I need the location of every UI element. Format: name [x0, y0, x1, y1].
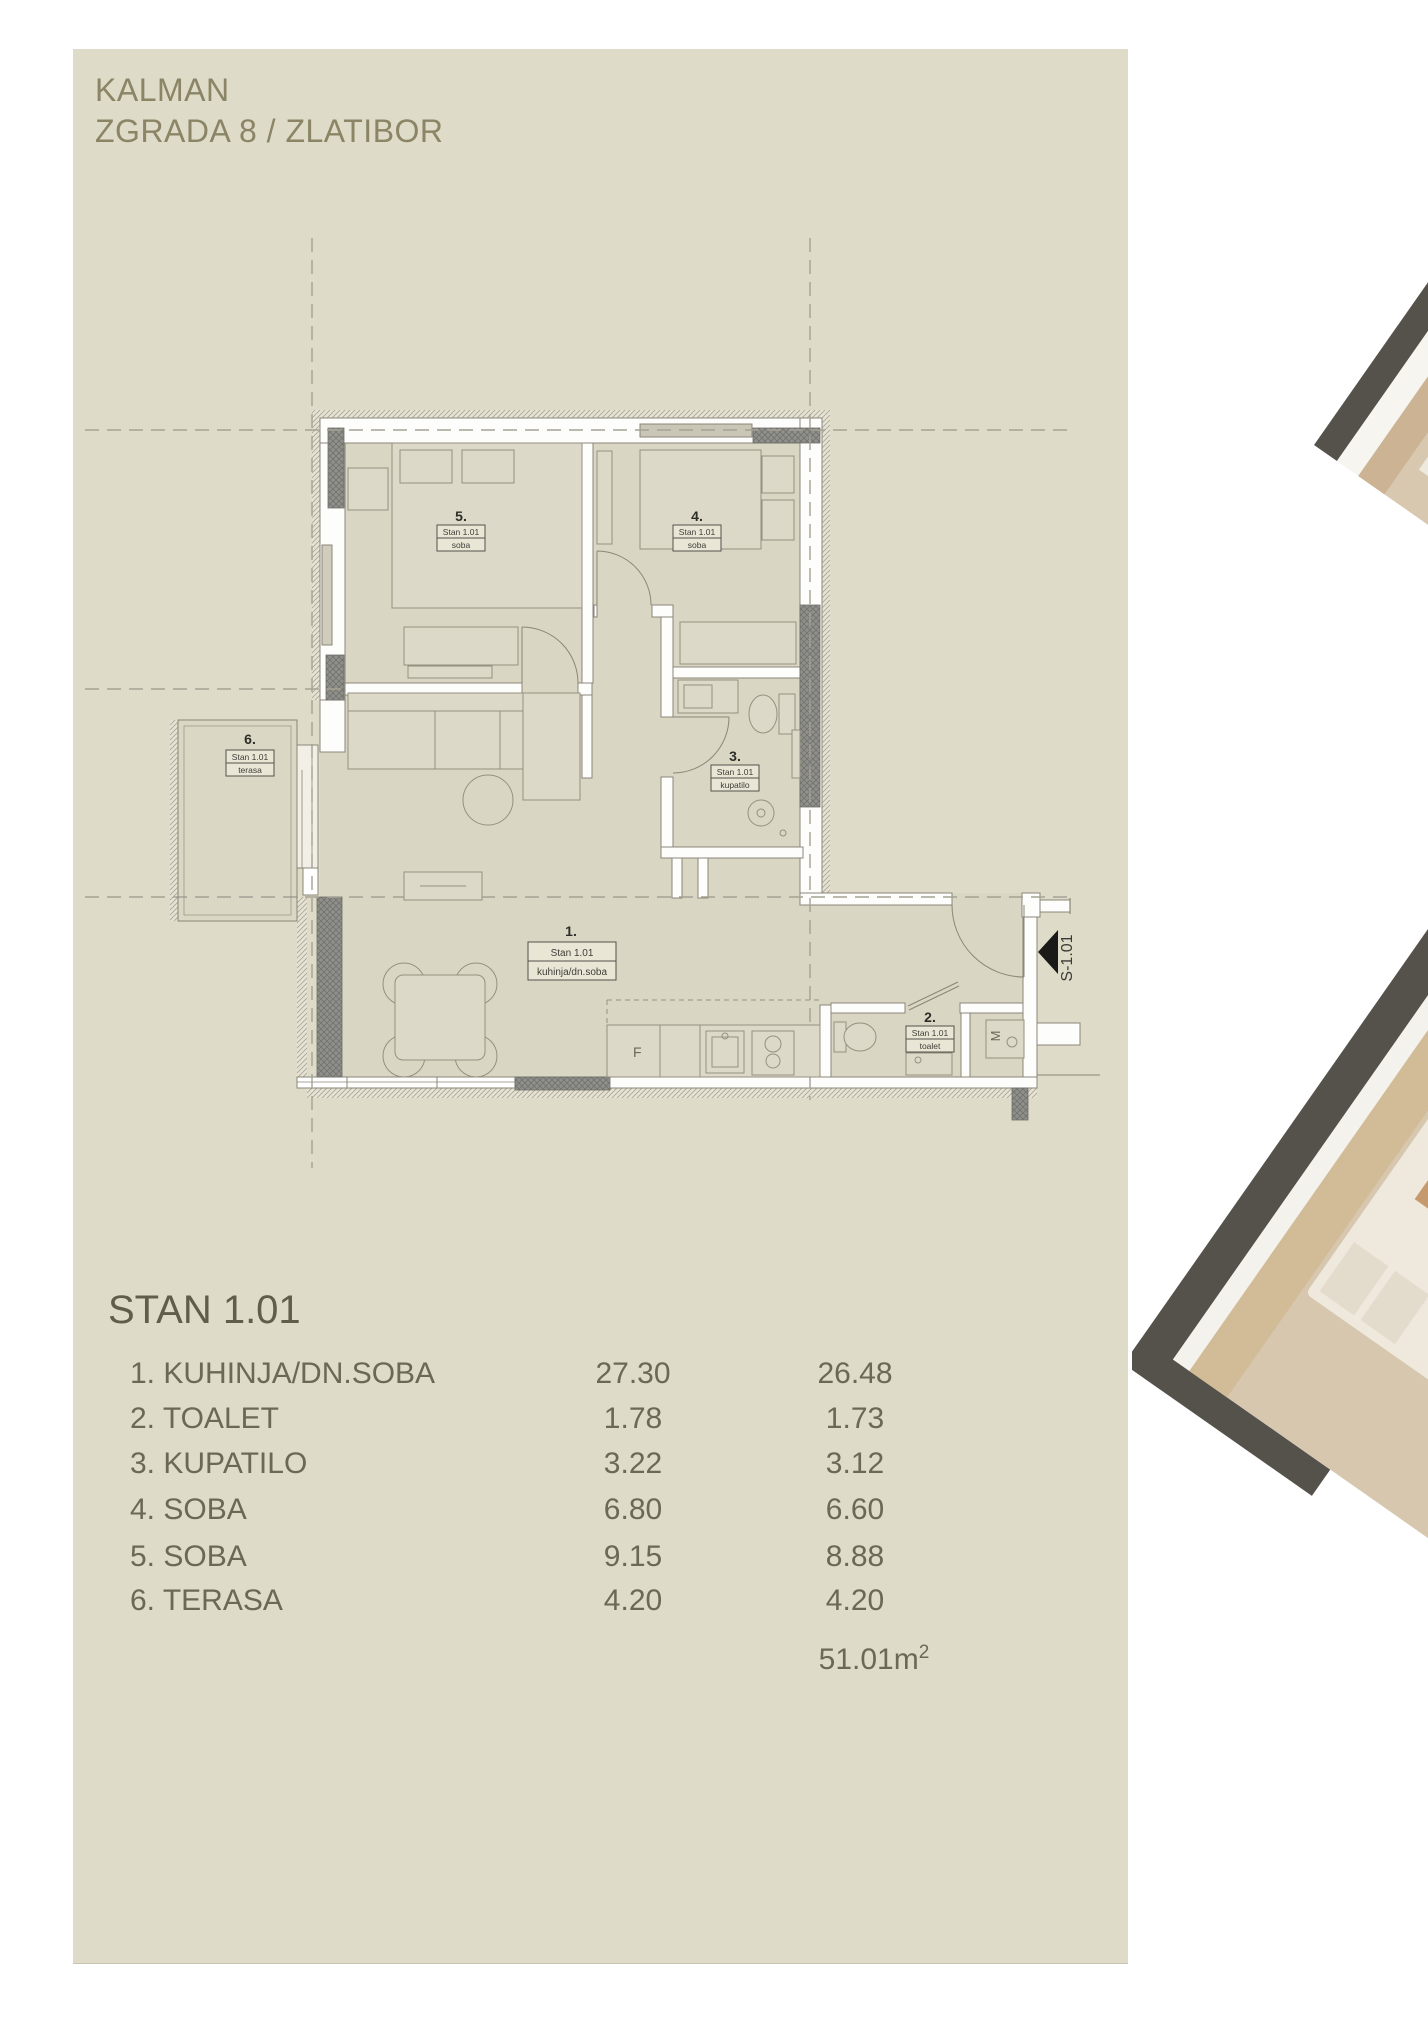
svg-text:kupatilo: kupatilo — [720, 780, 750, 790]
svg-text:1.: 1. — [565, 923, 577, 939]
svg-text:Stan 1.01: Stan 1.01 — [717, 767, 754, 777]
svg-text:Stan 1.01: Stan 1.01 — [679, 527, 716, 537]
svg-text:Stan 1.01: Stan 1.01 — [912, 1028, 949, 1038]
entrance-label: S-1.01 — [1059, 934, 1076, 981]
svg-text:3.: 3. — [729, 748, 741, 764]
svg-text:Stan 1.01: Stan 1.01 — [443, 527, 480, 537]
svg-text:soba: soba — [452, 540, 471, 550]
floor-plan: 1. Stan 1.01 kuhinja/dn.soba 2. Stan 1.0… — [0, 0, 1428, 2018]
washer-label: M — [988, 1031, 1003, 1042]
svg-text:6.: 6. — [244, 731, 256, 747]
page: 1. Stan 1.01 kuhinja/dn.soba 2. Stan 1.0… — [0, 0, 1428, 2018]
svg-text:kuhinja/dn.soba: kuhinja/dn.soba — [537, 967, 607, 978]
svg-text:4.: 4. — [691, 508, 703, 524]
svg-text:2.: 2. — [924, 1009, 936, 1025]
svg-text:toalet: toalet — [920, 1041, 941, 1051]
fridge-label: F — [633, 1044, 642, 1060]
svg-text:Stan 1.01: Stan 1.01 — [232, 752, 269, 762]
entrance-arrow-icon — [1038, 930, 1058, 974]
svg-text:soba: soba — [688, 540, 707, 550]
svg-text:terasa: terasa — [238, 765, 262, 775]
svg-text:Stan 1.01: Stan 1.01 — [551, 948, 594, 959]
svg-text:5.: 5. — [455, 508, 467, 524]
